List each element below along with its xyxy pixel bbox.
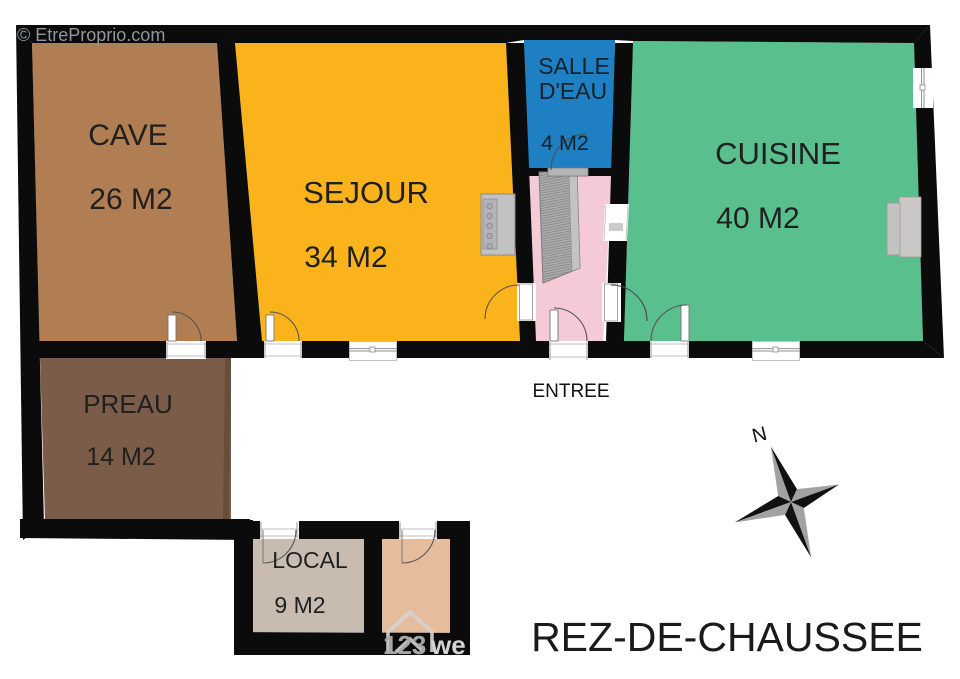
svg-text:© EtreProprio.com: © EtreProprio.com (17, 25, 165, 45)
svg-text:CAVE: CAVE (88, 119, 167, 152)
svg-text:REZ-DE-CHAUSSEE: REZ-DE-CHAUSSEE (531, 614, 923, 660)
svg-text:9 M2: 9 M2 (274, 592, 325, 618)
svg-text:34 M2: 34 M2 (304, 241, 387, 274)
svg-text:123: 123 (383, 630, 426, 660)
svg-text:LOCAL: LOCAL (272, 547, 348, 573)
svg-text:26 M2: 26 M2 (89, 183, 172, 216)
svg-text:PREAU: PREAU (83, 389, 173, 419)
svg-text:4 M2: 4 M2 (541, 131, 589, 155)
svg-text:SALLE: SALLE (538, 53, 610, 79)
svg-text:14 M2: 14 M2 (86, 443, 155, 471)
svg-text:D'EAU: D'EAU (539, 78, 607, 104)
svg-text:40 M2: 40 M2 (716, 202, 799, 235)
svg-text:we: we (430, 630, 466, 660)
svg-text:ENTREE: ENTREE (532, 381, 609, 402)
svg-text:SEJOUR: SEJOUR (303, 175, 429, 210)
svg-text:CUISINE: CUISINE (715, 136, 841, 171)
